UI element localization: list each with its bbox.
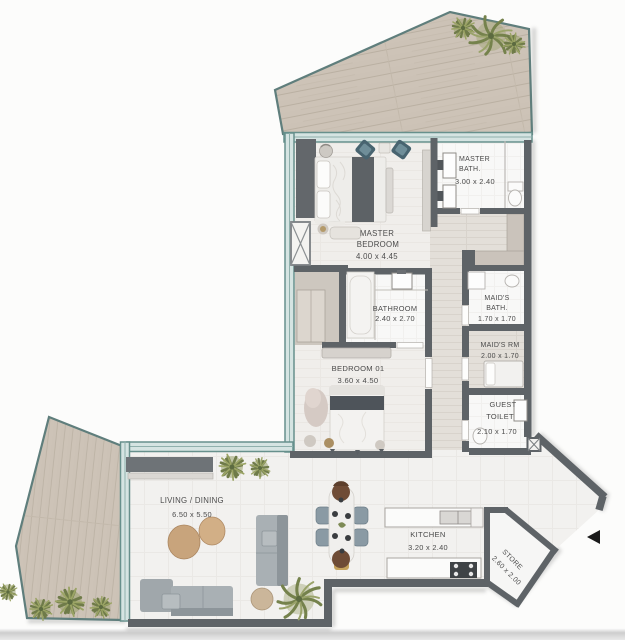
svg-text:BATHROOM: BATHROOM — [373, 304, 418, 313]
svg-text:GUEST: GUEST — [490, 400, 517, 409]
svg-text:MAID'S RM: MAID'S RM — [480, 342, 519, 349]
svg-text:1.70 x 1.70: 1.70 x 1.70 — [478, 316, 516, 323]
svg-text:BEDROOM: BEDROOM — [357, 240, 399, 249]
svg-text:BATH.: BATH. — [486, 305, 508, 312]
svg-text:3.20 x 2.40: 3.20 x 2.40 — [408, 543, 448, 552]
svg-text:KITCHEN: KITCHEN — [410, 530, 445, 539]
svg-text:2.10 x 1.70: 2.10 x 1.70 — [477, 427, 517, 436]
svg-text:BATH.: BATH. — [459, 166, 481, 173]
svg-text:3.00 x 2.40: 3.00 x 2.40 — [455, 177, 495, 186]
svg-text:MAID'S: MAID'S — [484, 295, 509, 302]
svg-text:MASTER: MASTER — [459, 156, 490, 163]
svg-text:TOILET: TOILET — [486, 412, 514, 421]
svg-text:6.50 x 5.50: 6.50 x 5.50 — [172, 510, 212, 519]
svg-text:2.40 x 2.70: 2.40 x 2.70 — [375, 314, 415, 323]
svg-text:3.60 x 4.50: 3.60 x 4.50 — [338, 376, 379, 385]
svg-text:MASTER: MASTER — [360, 229, 394, 238]
svg-text:4.00 x 4.45: 4.00 x 4.45 — [356, 252, 398, 261]
svg-text:BEDROOM 01: BEDROOM 01 — [332, 364, 385, 373]
svg-text:2.00 x 1.70: 2.00 x 1.70 — [481, 353, 519, 360]
svg-text:LIVING / DINING: LIVING / DINING — [160, 496, 224, 505]
